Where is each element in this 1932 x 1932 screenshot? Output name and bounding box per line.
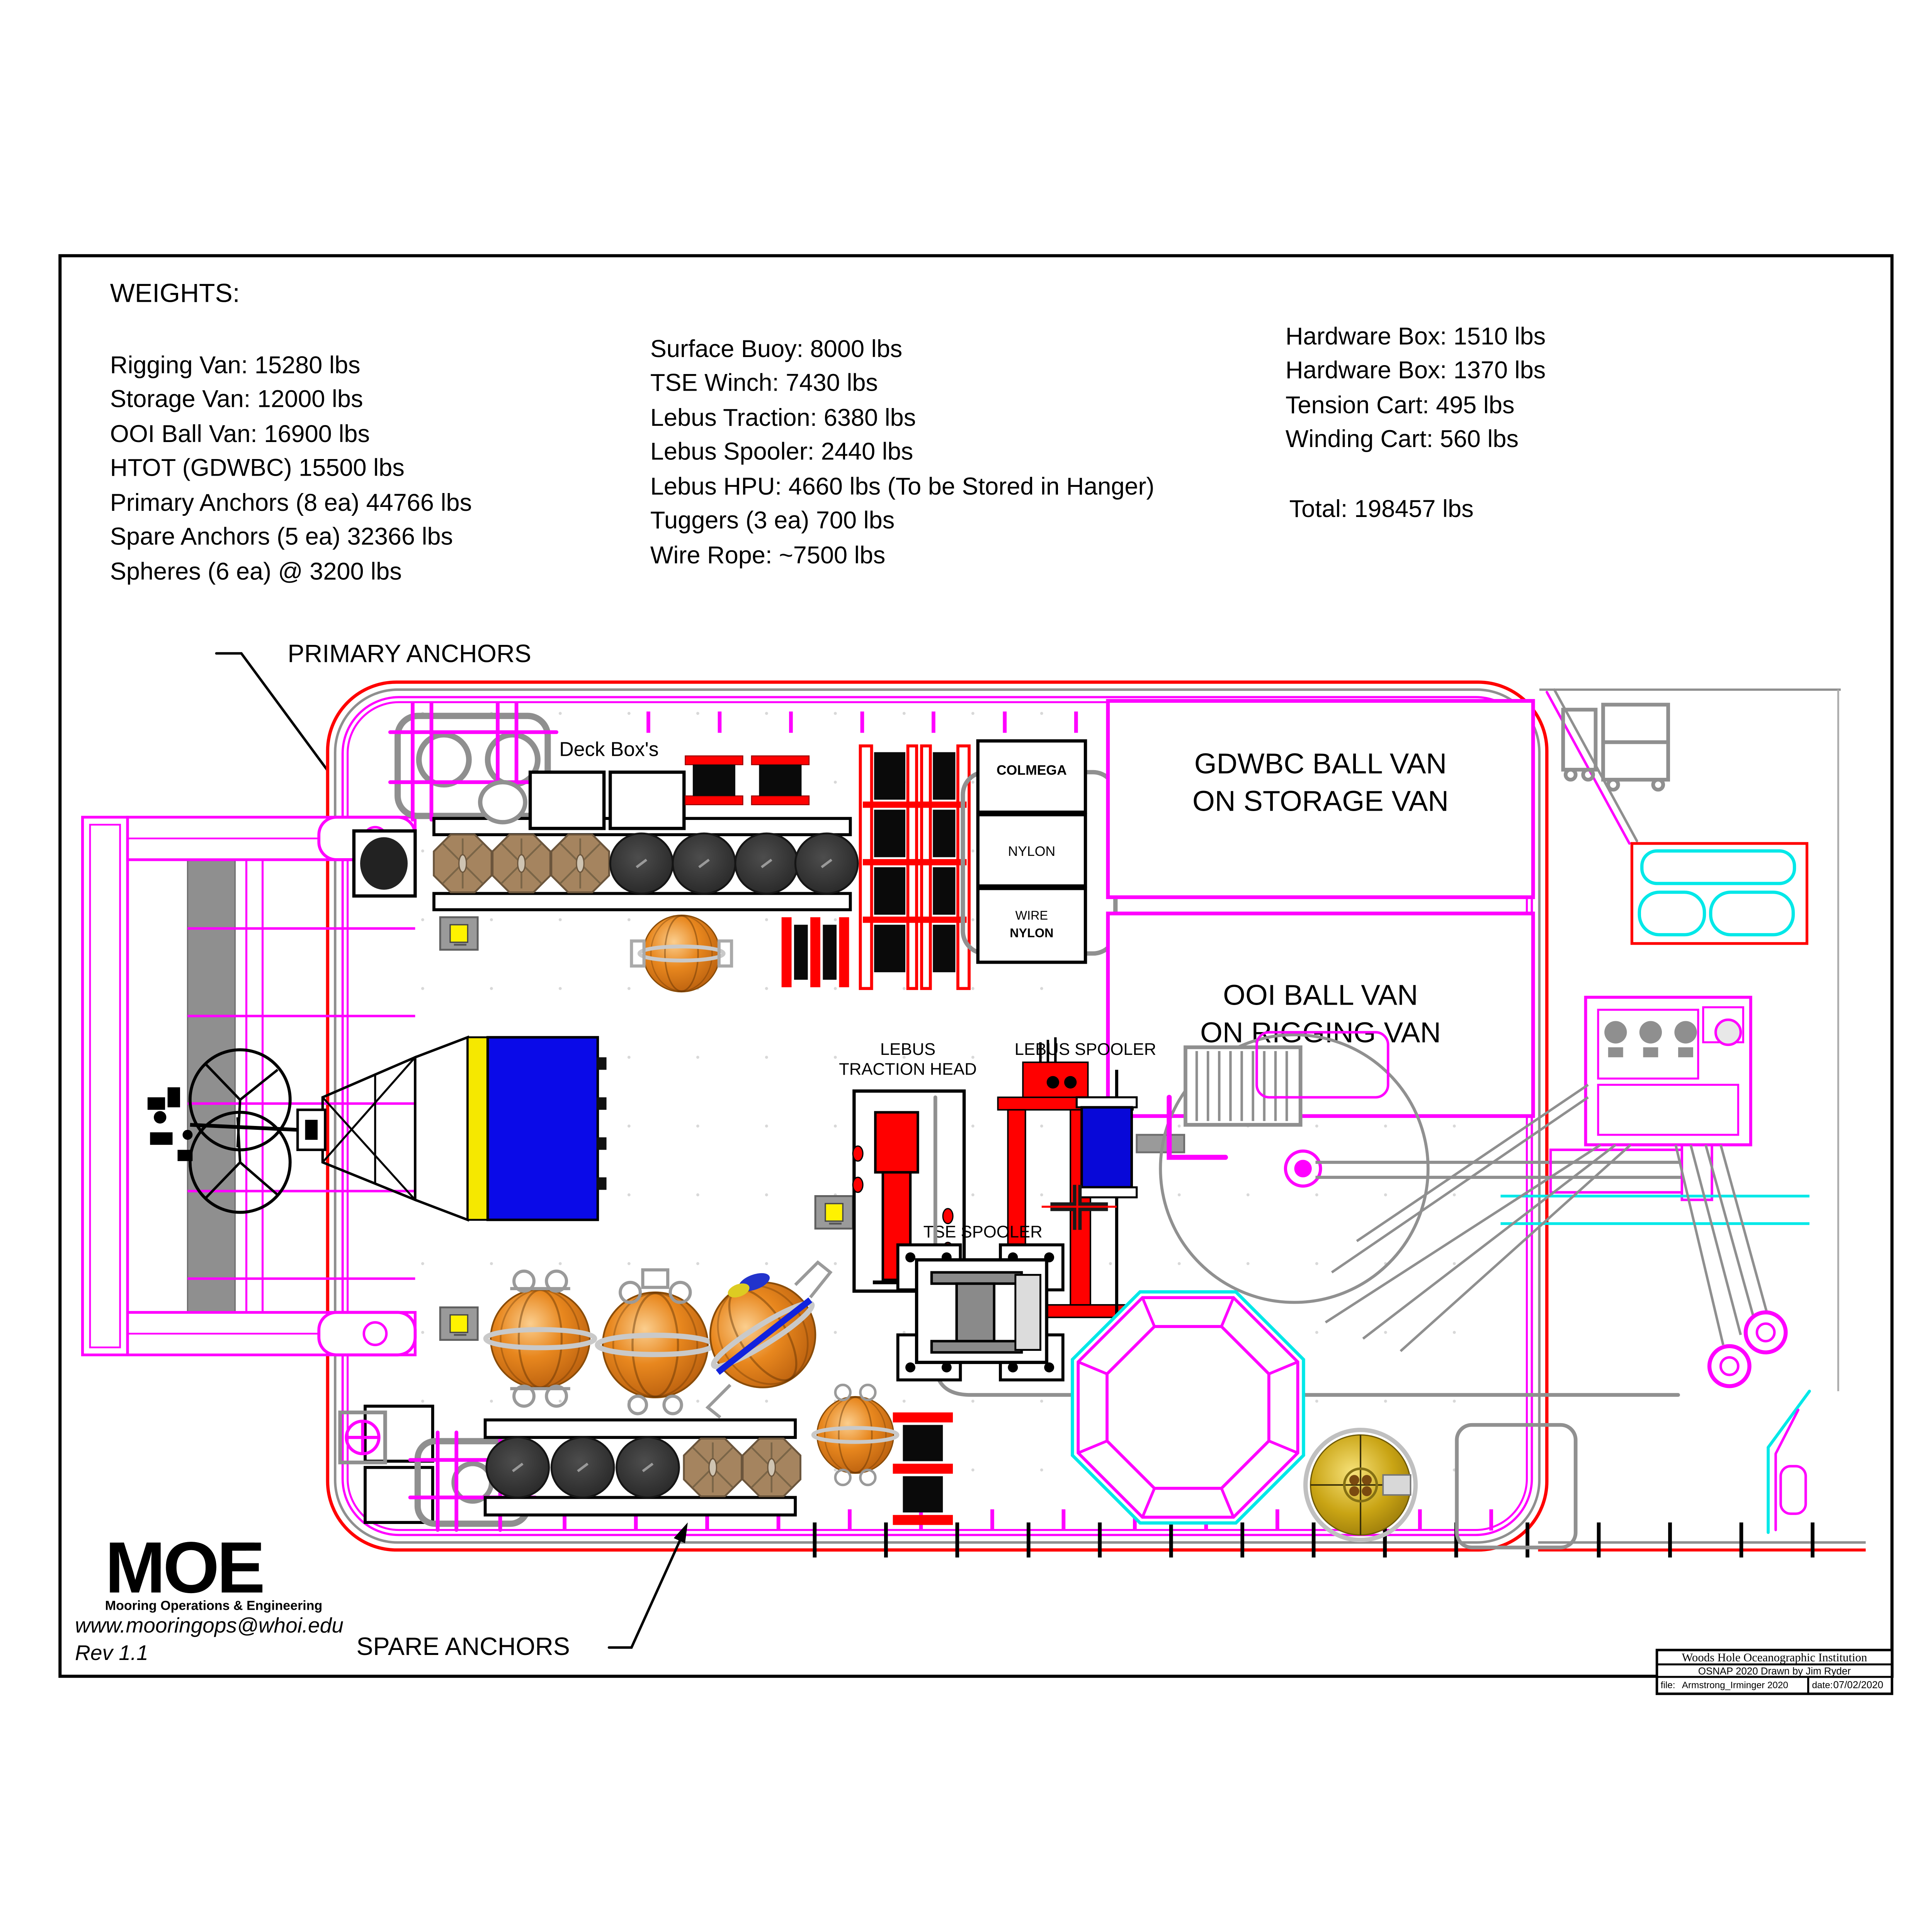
weight-line: Tension Cart: 495 lbs [1286,392,1515,419]
anchor-disc [360,837,408,890]
weight-line: Winding Cart: 560 lbs [1286,425,1519,452]
weight-line: Wire Rope: ~7500 lbs [650,542,885,569]
wire-label: WIRE [1015,908,1048,922]
revision-text: Rev 1.1 [75,1641,148,1665]
buoy-cone [415,1037,468,1219]
deck-box [610,772,684,828]
buoy-blue-hull [488,1037,598,1219]
anchor-rail [485,1420,796,1437]
weights-col3: Hardware Box: 1510 lbs Hardware Box: 137… [1286,323,1546,523]
weight-line: Primary Anchors (8 ea) 44766 lbs [110,489,472,516]
wire-nylon-bin [978,888,1085,962]
superstructure-diagonal-magenta [1547,692,1629,844]
primary-anchor-disc [610,833,673,893]
deck-hatch-circle [480,782,526,822]
lebus-spooler-label: LEBUS SPOOLER [1015,1040,1156,1059]
sphere-release-unit [1383,1475,1410,1495]
fairlead-sheave [1746,1312,1786,1352]
ooi-van-label-1: OOI BALL VAN [1223,979,1418,1011]
primary-anchor-octagon [551,835,609,893]
moe-tagline: Mooring Operations & Engineering [105,1599,322,1613]
weight-line: Lebus HPU: 4660 lbs (To be Stored in Han… [650,473,1155,500]
primary-anchor-disc [673,833,735,893]
moe-logo: MOE MOE Mooring Operations & Engineering [105,1527,322,1613]
ooi-van-area [1108,913,1533,1116]
weights-block: WEIGHTS: Rigging Van: 15280 lbs Storage … [110,279,1546,585]
weight-line: TSE Winch: 7430 lbs [650,369,878,396]
spare-anchor-octagon [743,1439,801,1497]
buoy-yellow-stripe [468,1037,488,1219]
spare-anchor-row [485,1420,801,1515]
wire-nylon-label: NYLON [1010,926,1053,940]
primary-anchor-disc [795,833,858,893]
weights-col2: Surface Buoy: 8000 lbs TSE Winch: 7430 l… [650,335,1155,569]
primary-anchor-octagon [434,835,492,893]
a-frame-sheave-bottom [319,1312,415,1355]
gdwbc-van-label-2: ON STORAGE VAN [1192,785,1449,817]
cable-spool [685,756,743,804]
glass-sphere-gold [1306,1430,1416,1540]
website-text: www.mooringops@whoi.edu [75,1613,344,1637]
weights-col1: Rigging Van: 15280 lbs Storage Van: 1200… [110,352,472,585]
weight-line: Hardware Box: 1510 lbs [1286,323,1546,350]
cable-spool [752,756,809,804]
weight-line: Storage Van: 12000 lbs [110,385,363,412]
weight-line: Lebus Spooler: 2440 lbs [650,438,913,465]
title-date-value: 07/02/2020 [1833,1680,1883,1690]
primary-anchors-label: PRIMARY ANCHORS [287,639,531,668]
title-project: OSNAP 2020 Drawn by Jim Ryder [1698,1666,1851,1677]
title-institution: Woods Hole Oceanographic Institution [1682,1651,1867,1664]
deck-layout-drawing: WEIGHTS: Rigging Van: 15280 lbs Storage … [0,0,1932,1932]
anchor-rail [434,893,850,910]
spare-anchor-disc [616,1437,679,1497]
anchor-rail [485,1497,796,1515]
title-block: Woods Hole Oceanographic Institution OSN… [1657,1650,1892,1694]
weights-total: Total: 198457 lbs [1289,495,1474,522]
spare-anchor-disc [551,1437,614,1497]
deck-boxes-label: Deck Box's [559,738,658,760]
deck-box [530,772,604,828]
bow-tank-box [1632,844,1807,944]
spare-anchor-disc [486,1437,549,1497]
pad-eye [440,917,478,950]
weight-line: Spare Anchors (5 ea) 32366 lbs [110,523,453,550]
drawing-page: WEIGHTS: Rigging Van: 15280 lbs Storage … [0,0,1932,1932]
weight-line: OOI Ball Van: 16900 lbs [110,420,370,447]
title-date-label: date: [1812,1680,1833,1690]
weight-line: Spheres (6 ea) @ 3200 lbs [110,558,402,585]
nylon-label: NYLON [1008,844,1056,859]
weight-line: HTOT (GDWBC) 15500 lbs [110,454,405,481]
buoy-instrument-cluster [148,1087,193,1161]
spare-anchor-octagon [684,1439,742,1497]
lebus-traction-label-1: LEBUS [880,1040,935,1059]
lebus-traction-label-2: TRACTION HEAD [839,1060,977,1079]
weight-line: Lebus Traction: 6380 lbs [650,404,916,431]
weight-line: Tuggers (3 ea) 700 lbs [650,507,895,534]
winch-motors [1604,1021,1697,1057]
buoy-well-octagon [1072,1292,1303,1523]
hand-carts [1563,705,1668,790]
colmega-label: COLMEGA [997,762,1067,778]
crane-pedestal [1294,1160,1312,1177]
tse-winch-drum [1185,1047,1301,1125]
pad-eye [815,1196,853,1228]
pad-eye [440,1307,478,1340]
primary-anchor-disc [735,833,798,893]
blue-wire-spool [1082,1107,1131,1187]
gdwbc-van-label-1: GDWBC BALL VAN [1194,748,1447,780]
spare-anchors-label: SPARE ANCHORS [356,1632,570,1660]
weight-line: Hardware Box: 1370 lbs [1286,357,1546,384]
weight-line: Surface Buoy: 8000 lbs [650,335,902,362]
primary-anchor-octagon [493,835,551,893]
title-file-value: Armstrong_Irminger 2020 [1682,1680,1788,1690]
fairlead-sheave [1709,1346,1750,1386]
tse-spooler-label: TSE SPOOLER [923,1222,1043,1241]
weights-title: WEIGHTS: [110,279,240,308]
weight-line: Rigging Van: 15280 lbs [110,352,361,379]
title-file-label: file: [1661,1680,1675,1690]
deck-crate [365,1406,433,1461]
